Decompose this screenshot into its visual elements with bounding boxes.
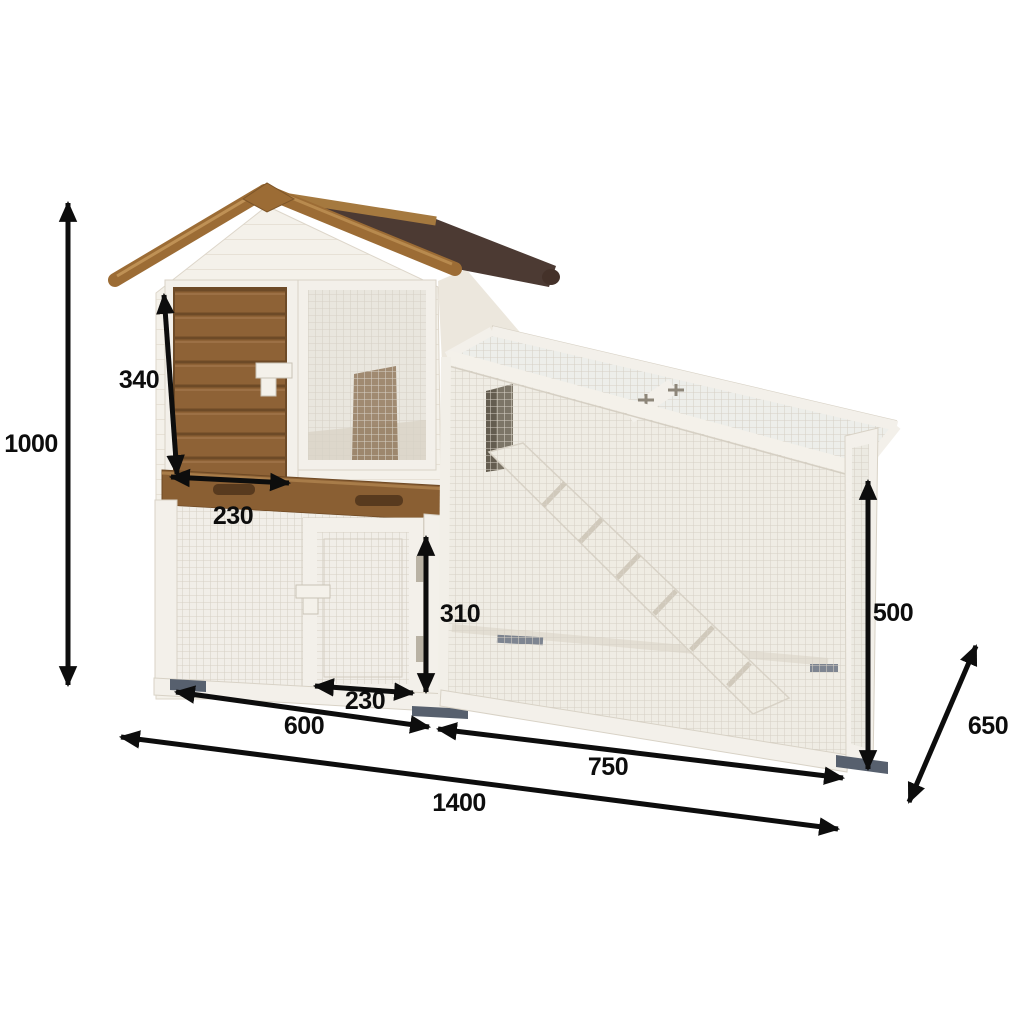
tray-handle-left (213, 484, 255, 495)
dim-label-left-section-width: 600 (284, 712, 324, 740)
run-left-post (443, 357, 446, 697)
dim-label-overall-height: 1000 (4, 430, 58, 458)
dim-label-hutch-door-width: 230 (213, 502, 253, 530)
dim-label-hutch-door-height: 340 (119, 366, 159, 394)
dim-label-depth: 650 (968, 712, 1008, 740)
hutch-window-mesh (308, 290, 426, 460)
dim-arrow-depth (909, 646, 976, 802)
corner-post-left (155, 500, 177, 690)
lower-cage-mesh (158, 505, 446, 700)
dim-label-run-door-width: 230 (345, 687, 385, 715)
tray-handle-right (355, 495, 403, 506)
foot-left (170, 679, 206, 692)
run-door-hinge-bottom (416, 636, 424, 662)
product-dimension-figure: 1000 340 230 310 230 600 750 1400 500 65… (0, 0, 1024, 1024)
dim-label-run-door-height: 310 (440, 600, 480, 628)
run-door-hinge-top (416, 556, 424, 582)
dim-label-run-height: 500 (873, 599, 913, 627)
dim-label-overall-length: 1400 (432, 789, 486, 817)
dim-label-run-section-width: 750 (588, 753, 628, 781)
